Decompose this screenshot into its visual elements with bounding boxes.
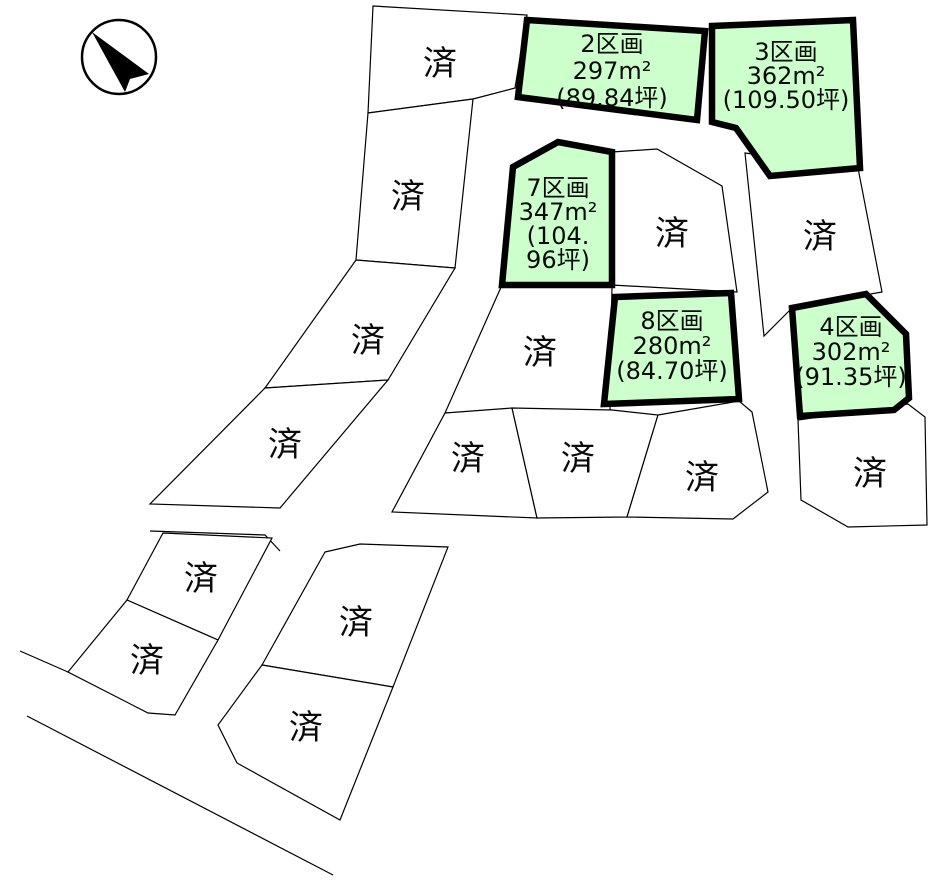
sold-10-label: 済 bbox=[685, 458, 719, 498]
road-edge-1 bbox=[20, 651, 68, 672]
sold-7-label: 済 bbox=[523, 333, 557, 373]
sold-1-label: 済 bbox=[423, 44, 457, 84]
sold-15-label: 済 bbox=[289, 708, 323, 748]
plot-7-label: 7区画347m²(104.96坪) bbox=[519, 174, 598, 274]
compass-arrow bbox=[92, 32, 149, 92]
sold-2-label: 済 bbox=[391, 177, 425, 217]
sold-8-label: 済 bbox=[451, 439, 485, 479]
sold-4-label: 済 bbox=[268, 425, 302, 465]
sold-11-label: 済 bbox=[853, 454, 887, 494]
sold-12-label: 済 bbox=[184, 559, 218, 599]
land-plot-map: 済済済済済済済済済済済済済済済 2区画297m²(89.84坪)3区画362m²… bbox=[0, 0, 941, 882]
sold-5-label: 済 bbox=[655, 214, 689, 254]
sold-14-label: 済 bbox=[339, 603, 373, 643]
sold-6-label: 済 bbox=[803, 217, 837, 257]
plot-map-canvas: 済済済済済済済済済済済済済済済 2区画297m²(89.84坪)3区画362m²… bbox=[0, 0, 941, 882]
sold-3-label: 済 bbox=[351, 321, 385, 361]
north-arrow-icon bbox=[82, 20, 156, 94]
sold-13-label: 済 bbox=[130, 641, 164, 681]
sold-9-label: 済 bbox=[561, 439, 595, 479]
